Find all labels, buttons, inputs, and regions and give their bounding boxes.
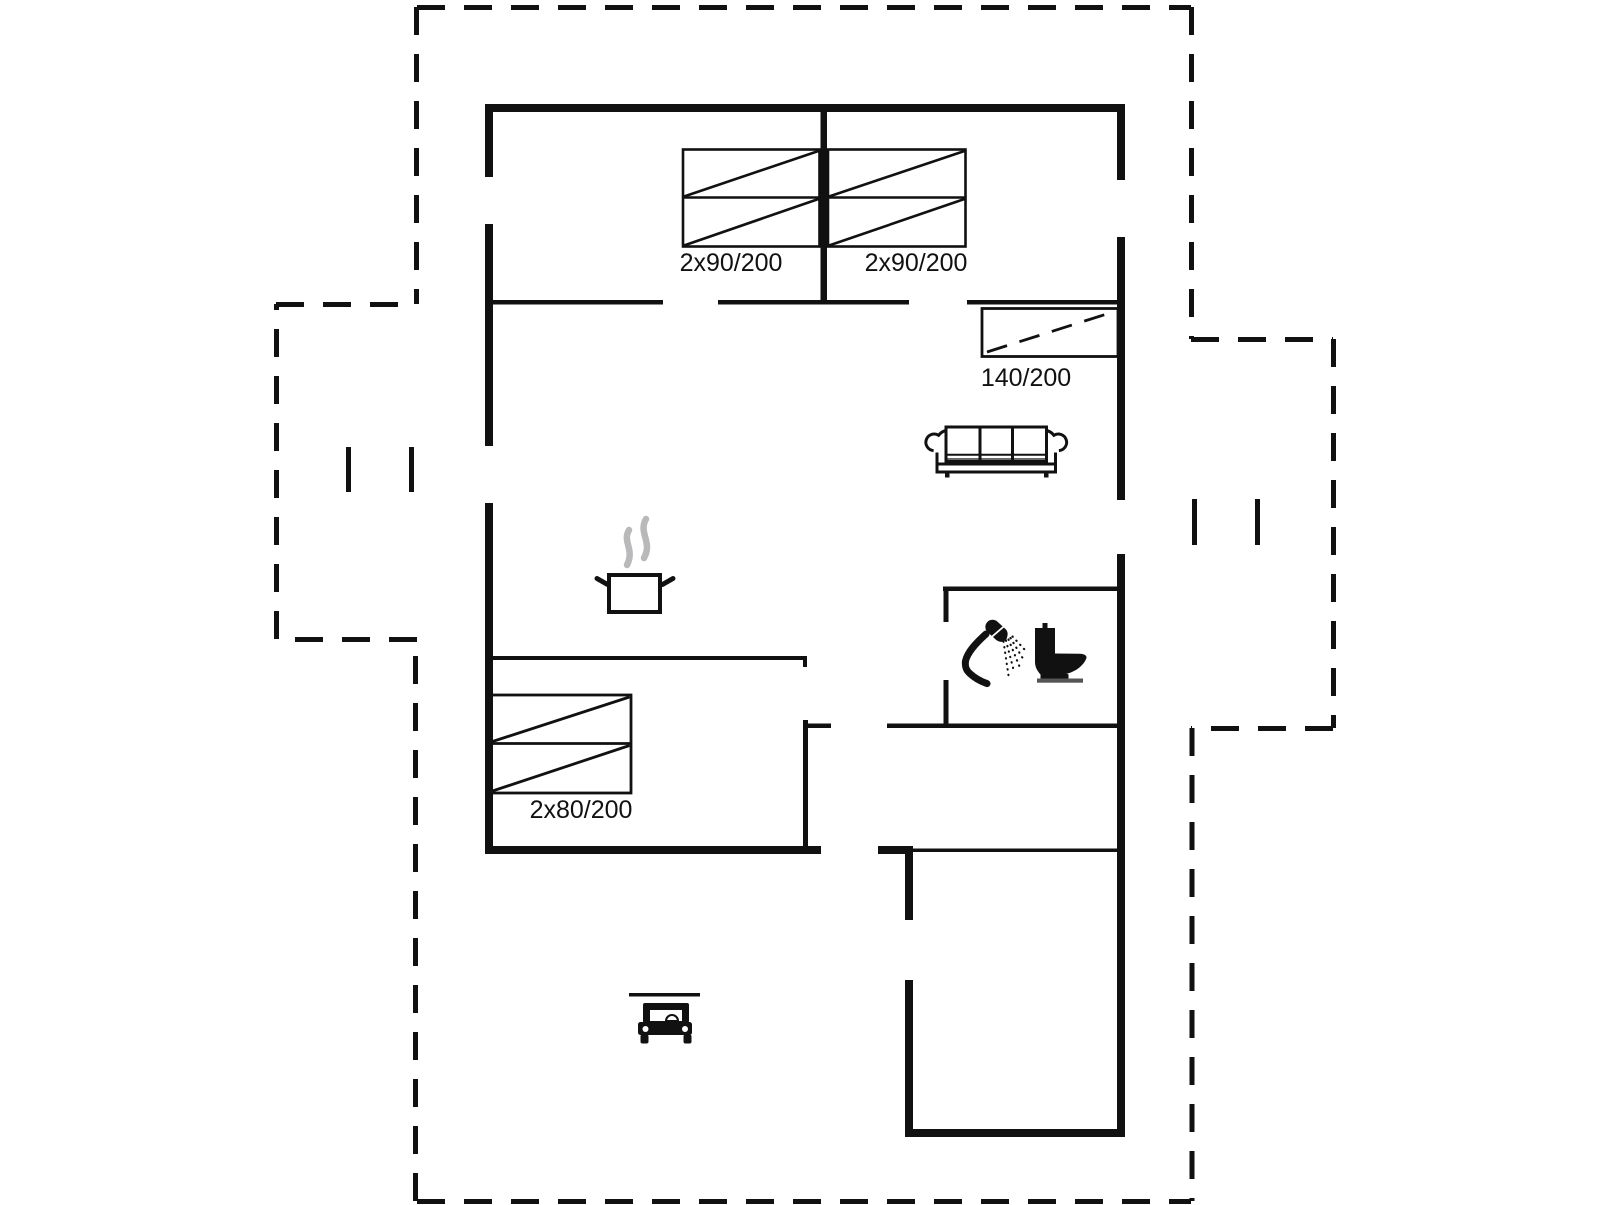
svg-text:2x90/200: 2x90/200	[680, 249, 783, 277]
svg-text:2x90/200: 2x90/200	[865, 249, 968, 277]
svg-text:140/200: 140/200	[981, 364, 1071, 392]
svg-text:2x80/200: 2x80/200	[530, 796, 633, 824]
